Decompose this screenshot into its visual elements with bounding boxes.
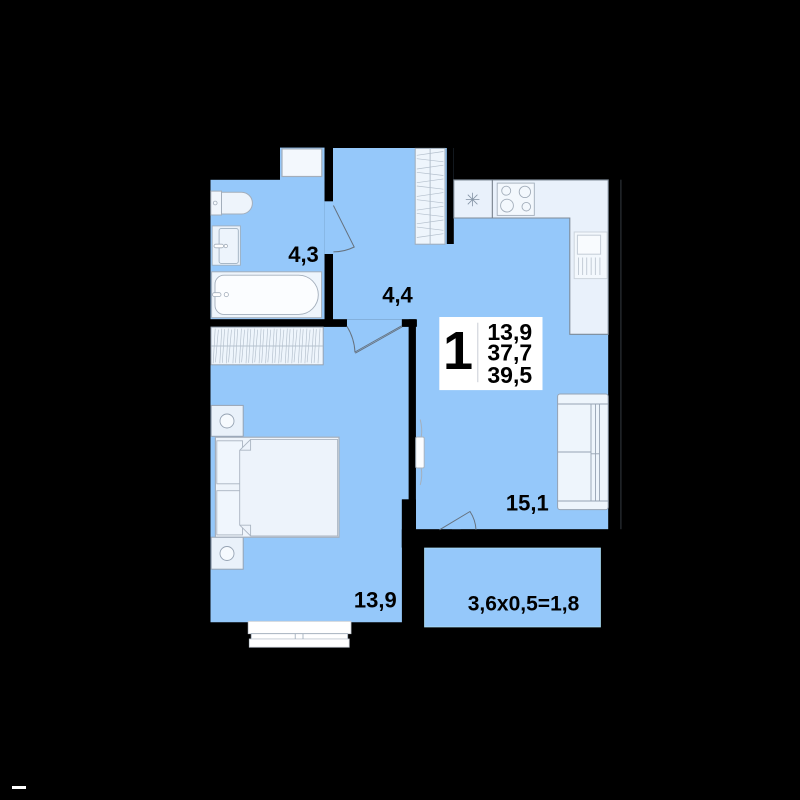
svg-text:4,4: 4,4: [382, 283, 413, 308]
svg-text:3,6x0,5=1,8: 3,6x0,5=1,8: [468, 593, 580, 616]
svg-text:4,3: 4,3: [288, 242, 319, 267]
svg-text:1: 1: [443, 321, 473, 381]
svg-text:15,1: 15,1: [506, 491, 549, 516]
svg-text:13,9: 13,9: [354, 588, 397, 613]
svg-text:39,5: 39,5: [487, 362, 532, 388]
